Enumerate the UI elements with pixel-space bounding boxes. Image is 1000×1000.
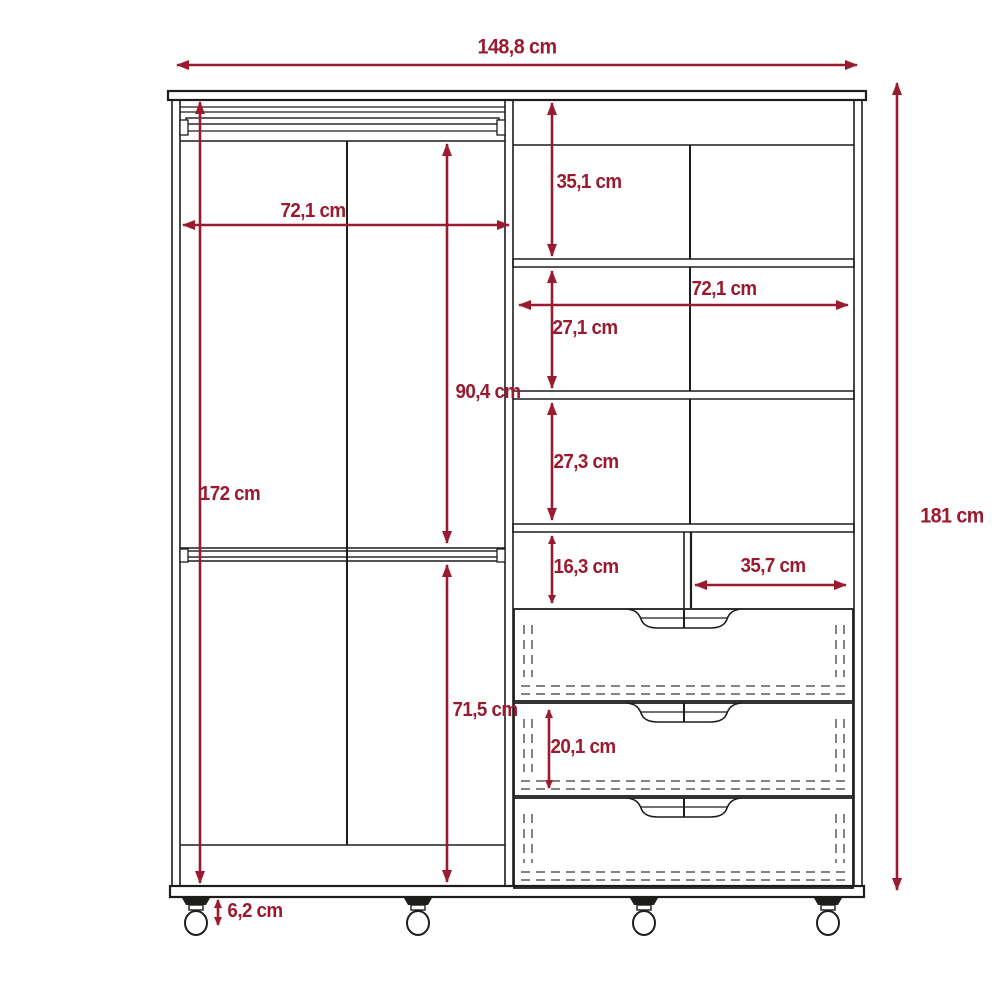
caster-4 (814, 898, 842, 935)
dim-label-caster-height: 6,2 cm (227, 901, 282, 921)
top-hanging-rod (180, 107, 505, 141)
dim-label-lower-hanging-height: 71,5 cm (452, 700, 517, 720)
dim-label-fourth-right-section-height: 16,3 cm (553, 557, 618, 577)
shelf-1 (513, 259, 854, 267)
middle-hanging-rod (180, 548, 505, 562)
top-panel (168, 91, 866, 100)
drawer-1 (514, 609, 853, 701)
dim-label-left-inner-width: 72,1 cm (280, 201, 345, 221)
cabinet-carcass (168, 91, 866, 897)
dim-label-third-right-section-height: 27,3 cm (553, 452, 618, 472)
dim-label-left-inner-height: 172 cm (200, 484, 260, 504)
rod-bracket-right (497, 120, 505, 135)
rod-bracket-right (497, 549, 505, 562)
dim-label-right-inner-width: 72,1 cm (691, 279, 756, 299)
rod-bracket-left (180, 549, 188, 562)
dim-label-drawer-height: 20,1 cm (550, 737, 615, 757)
shelf-2 (513, 391, 854, 399)
drawer-box-dashed (521, 625, 846, 694)
drawer-box-dashed (521, 814, 846, 880)
right-compartment (513, 145, 854, 608)
caster-2 (404, 898, 432, 935)
shelf-3 (513, 524, 854, 532)
dim-label-second-right-section-height: 27,1 cm (552, 318, 617, 338)
dim-label-overall-height: 181 cm (920, 506, 984, 527)
caster-3 (630, 898, 658, 935)
rod-bracket-left (180, 120, 188, 135)
center-partition (505, 100, 513, 886)
right-side-panel (854, 100, 862, 886)
left-side-panel (172, 100, 180, 886)
dim-label-upper-hanging-height: 90,4 cm (455, 382, 520, 402)
wardrobe-dimension-diagram: 148,8 cm 181 cm 72,1 cm 172 cm 90,4 cm 7… (0, 0, 1000, 1000)
dim-label-top-right-section-height: 35,1 cm (556, 172, 621, 192)
diagram-drawing (0, 0, 1000, 1000)
drawer-3 (514, 798, 853, 888)
dim-label-half-shelf-width: 35,7 cm (740, 556, 805, 576)
dim-label-overall-width: 148,8 cm (478, 37, 557, 58)
caster-1 (182, 898, 210, 935)
